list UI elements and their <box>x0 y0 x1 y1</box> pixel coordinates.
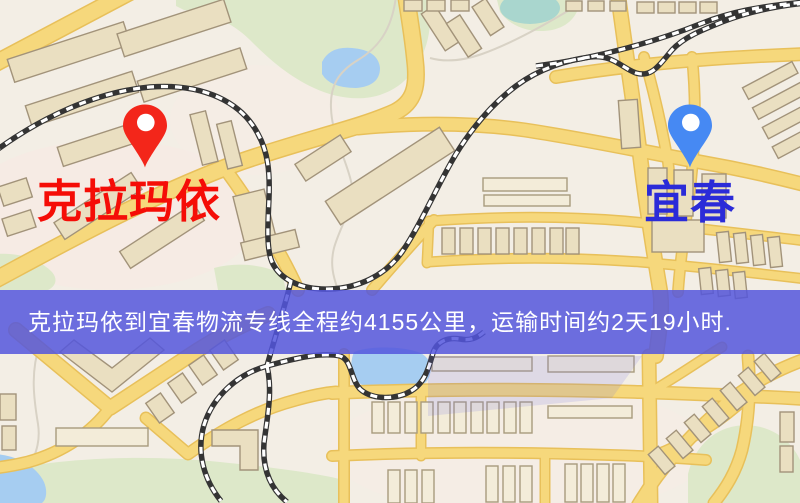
map-view[interactable]: 克拉玛依到宜春物流专线全程约4155公里，运输时间约2天19小时. 克拉玛依 宜… <box>0 0 800 503</box>
route-info-text: 克拉玛依到宜春物流专线全程约4155公里，运输时间约2天19小时. <box>0 311 732 334</box>
origin-pin-hole <box>137 114 155 132</box>
route-info-banner: 克拉玛依到宜春物流专线全程约4155公里，运输时间约2天19小时. <box>0 290 800 354</box>
destination-pin-hole <box>682 114 700 132</box>
map-canvas <box>0 0 800 503</box>
destination-city-label: 宜春 <box>644 180 736 225</box>
origin-pin-icon[interactable] <box>122 103 168 168</box>
destination-pin-icon[interactable] <box>667 103 713 168</box>
origin-city-label: 克拉玛依 <box>37 179 221 224</box>
